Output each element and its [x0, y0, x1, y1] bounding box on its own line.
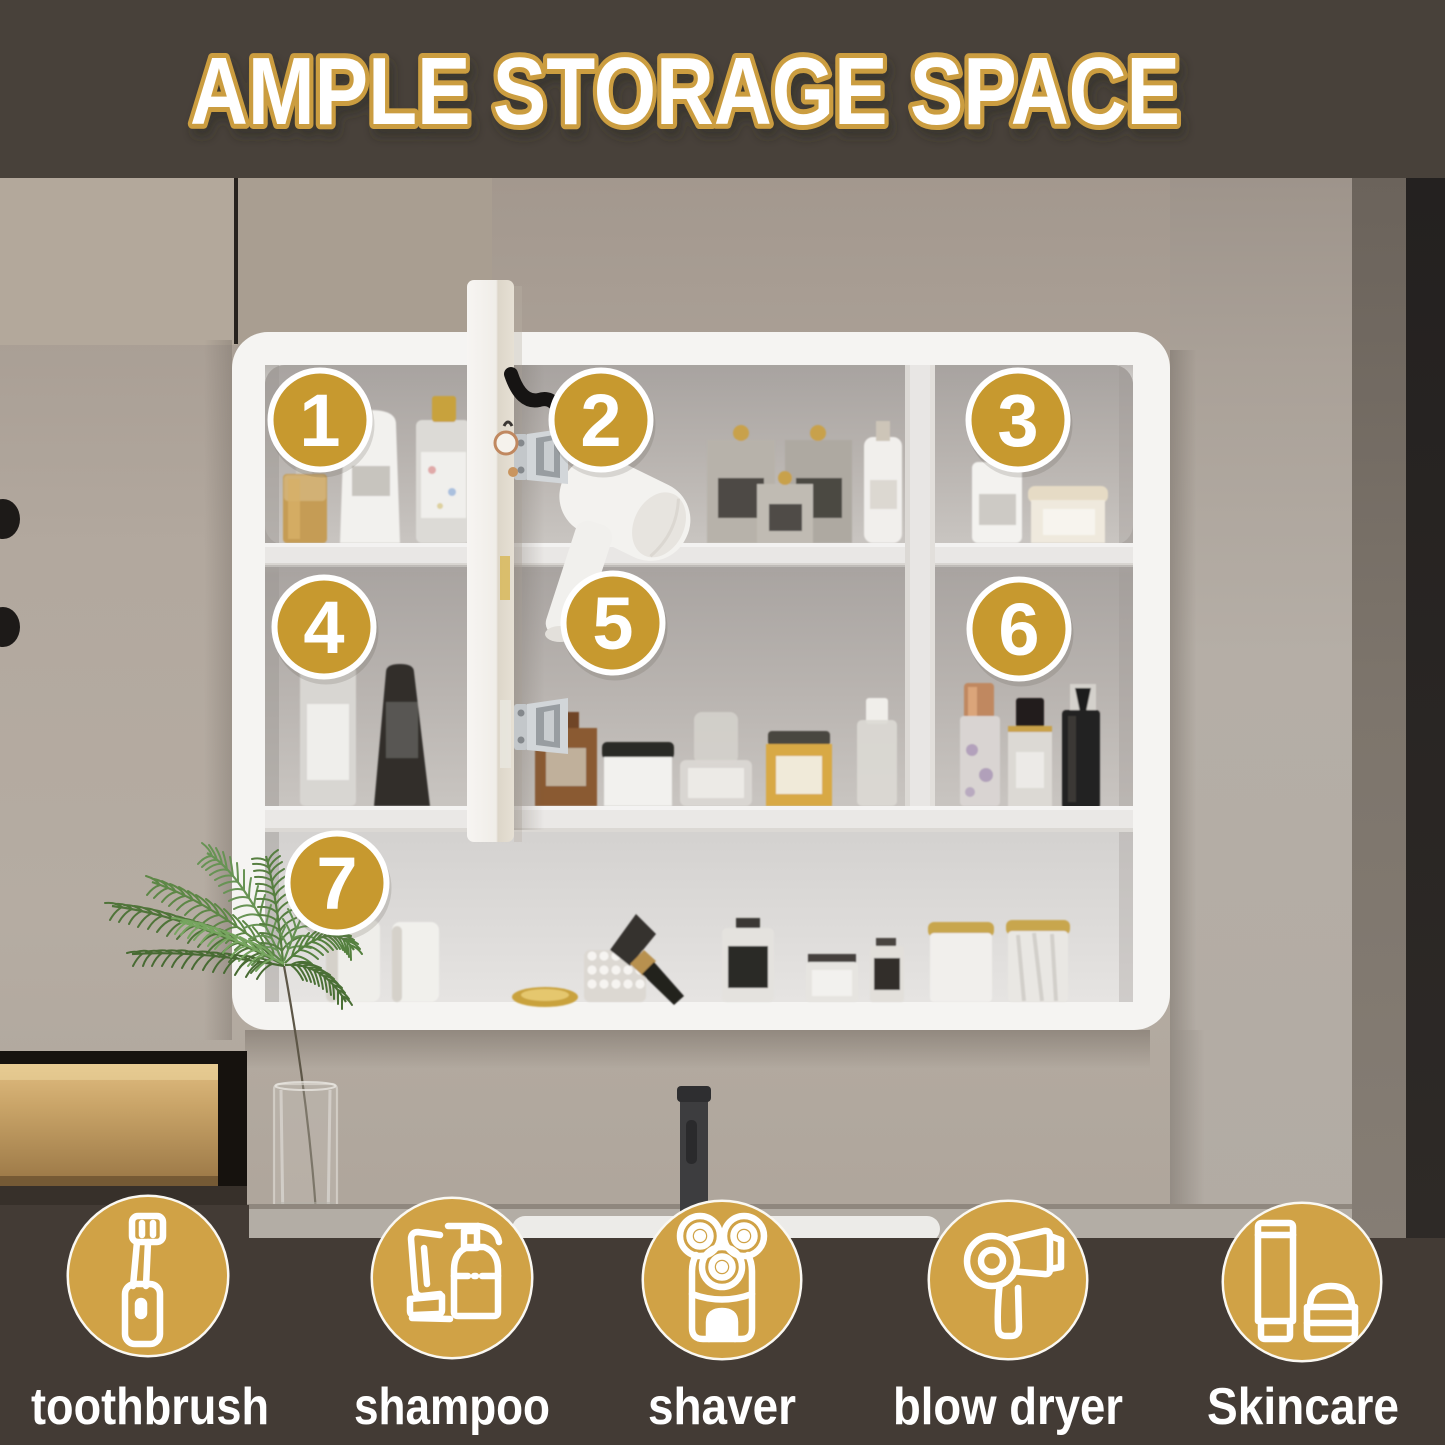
svg-text:Skincare: Skincare — [1207, 1378, 1399, 1436]
svg-text:AMPLE STORAGE SPACE: AMPLE STORAGE SPACE — [190, 38, 1180, 145]
svg-text:4: 4 — [303, 586, 344, 669]
svg-text:toothbrush: toothbrush — [31, 1378, 269, 1436]
svg-text:3: 3 — [997, 379, 1038, 462]
svg-text:shaver: shaver — [648, 1378, 796, 1436]
svg-text:blow dryer: blow dryer — [893, 1378, 1123, 1436]
svg-text:7: 7 — [316, 842, 357, 925]
svg-text:5: 5 — [592, 582, 633, 665]
svg-text:6: 6 — [998, 588, 1039, 671]
svg-text:1: 1 — [299, 379, 340, 462]
svg-text:shampoo: shampoo — [354, 1378, 550, 1436]
svg-text:2: 2 — [580, 379, 621, 462]
